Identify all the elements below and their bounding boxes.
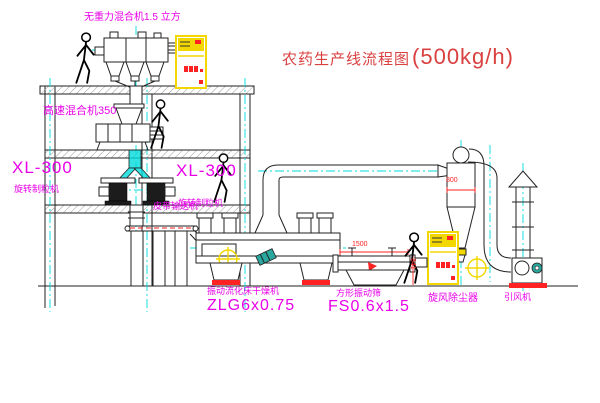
gravity-free-mixer: [95, 32, 180, 108]
label-dryer-model: ZLG6x0.75: [207, 298, 295, 315]
label-belt-conveyor: 皮带输送机: [153, 202, 198, 211]
dimension-cyclone-diameter: 800: [446, 177, 458, 184]
label-fan: 引风机: [504, 293, 531, 302]
label-sieve-model: FS0.6x1.5: [328, 299, 410, 316]
control-cabinet-1: [176, 36, 206, 88]
label-gravity-mixer: 无重力混合机1.5 立方: [84, 13, 181, 24]
drawing-title-text: 农药生产线流程图: [282, 52, 410, 68]
dryer-exhaust-duct: [255, 165, 452, 233]
fluid-bed-dryer: [196, 213, 352, 285]
label-cyclone: 旋风除尘器: [428, 294, 478, 305]
person-figure: [151, 100, 168, 148]
dimension-sieve-height: 341: [409, 258, 416, 270]
process-flow-drawing: 农药生产线流程图 (500kg/h) 无重力混合机1.5 立方 高速混合机350…: [0, 0, 600, 403]
induced-draft-fan: [509, 258, 547, 288]
granulator-left-unit: [99, 178, 135, 205]
control-cabinet-2: [428, 232, 458, 284]
drawing-title-capacity: (500kg/h): [412, 45, 514, 68]
label-dryer-name: 振动流化床干燥机: [207, 287, 279, 296]
label-granulator-left-model: XL-300: [12, 159, 73, 177]
label-granulator-mid-model: XL-300: [176, 162, 237, 180]
drawing-title: 农药生产线流程图 (500kg/h): [282, 45, 514, 68]
label-granulator-left-name: 旋转制粒机: [14, 185, 59, 194]
label-high-speed-mixer: 高速混合机350: [43, 106, 116, 118]
person-figure: [76, 33, 93, 83]
dimension-sieve-length: 1500: [352, 241, 368, 248]
